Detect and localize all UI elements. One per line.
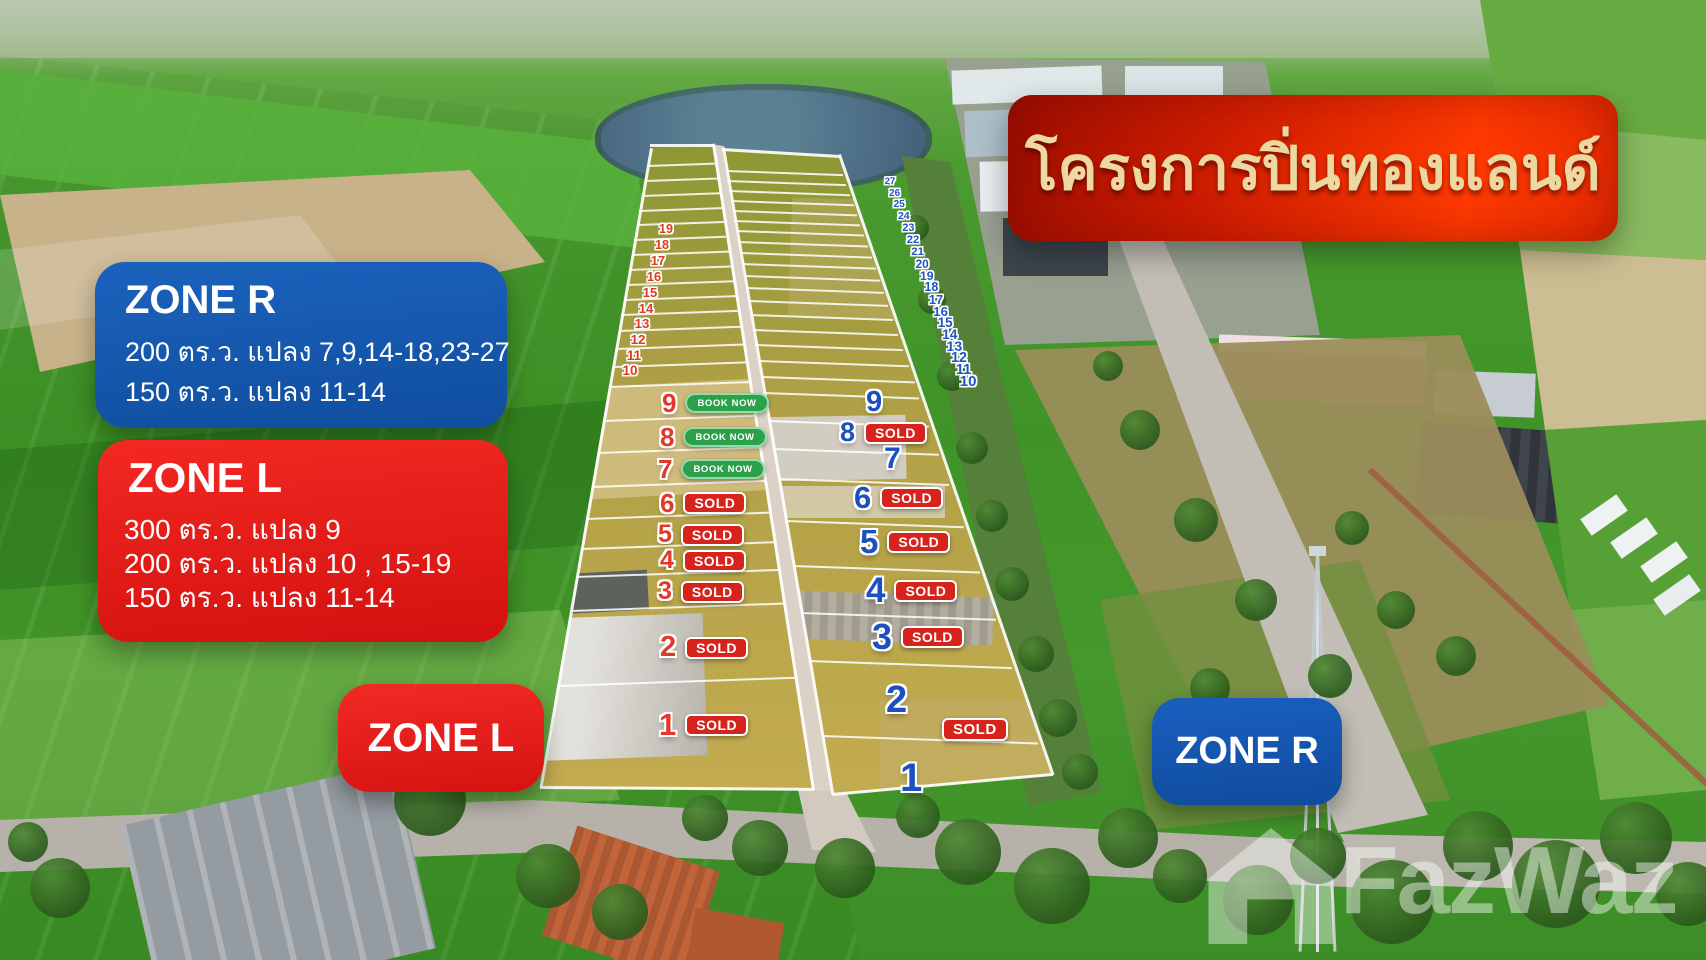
plot-number: 9: [866, 388, 882, 417]
plot-label-left-9: 9 BOOK NOW: [662, 390, 769, 416]
edge-plot-number-11: 11: [627, 348, 641, 363]
tree: [1098, 808, 1158, 868]
plot-label-left-1: 1 SOLD: [659, 709, 748, 740]
sold-badge: SOLD: [942, 718, 1008, 741]
tree: [896, 794, 940, 838]
zone-r-info-card: ZONE R 200 ตร.ว. แปลง 7,9,14-18,23-27 15…: [95, 262, 507, 428]
plot-number: 5: [658, 522, 672, 547]
plot-number: 5: [860, 525, 878, 558]
plot-label-right-7: 7: [884, 444, 901, 474]
sold-badge: SOLD: [685, 714, 748, 736]
plot-label-left-2: 2 SOLD: [660, 633, 748, 662]
plot-label-left-4: 4 SOLD: [660, 548, 746, 573]
sold-badge: SOLD: [683, 550, 746, 572]
tree: [1039, 699, 1077, 737]
zone-l-map-label: ZONE L: [338, 684, 544, 792]
plot-label-right-9: 9: [866, 388, 882, 417]
edge-plot-number-13: 13: [635, 316, 650, 331]
plot-number: 3: [872, 619, 892, 655]
tree: [1436, 636, 1476, 676]
plot-number: 9: [662, 390, 676, 416]
sold-badge: SOLD: [681, 581, 744, 603]
tree: [1014, 848, 1090, 924]
plot-label-left-7: 7 BOOK NOW: [658, 456, 765, 482]
project-title: โครงการปิ่นทองแลนด์: [1025, 121, 1601, 216]
horizon-haze: [0, 0, 1706, 58]
tree: [1335, 511, 1369, 545]
plot-number: 4: [660, 548, 674, 573]
tree: [1093, 351, 1123, 381]
plot-label-right-1: 1: [900, 758, 922, 798]
tree: [516, 844, 580, 908]
plot-number: 2: [886, 681, 907, 719]
plot-label-right-4: 4 SOLD: [866, 573, 957, 608]
plot-number: 7: [884, 444, 901, 474]
tree: [682, 795, 728, 841]
plot-label-right-6: 6 SOLD: [854, 482, 943, 513]
telecom-tower-top: [1309, 546, 1326, 556]
zone-l-card-line: 150 ตร.ว. แปลง 11-14: [124, 576, 395, 620]
project-title-banner: โครงการปิ่นทองแลนด์: [1008, 95, 1618, 241]
fazwaz-watermark: FazWaz: [1196, 822, 1676, 947]
tree: [995, 567, 1029, 601]
plot-label-left-5: 5 SOLD: [658, 522, 744, 547]
plot-number: 8: [660, 424, 674, 450]
zone-l-info-card: ZONE L 300 ตร.ว. แปลง 9 200 ตร.ว. แปลง 1…: [98, 440, 508, 642]
plot-boundary-line: [650, 144, 714, 147]
sold-badge: SOLD: [901, 626, 964, 648]
tree: [732, 820, 788, 876]
tree: [8, 822, 48, 862]
zone-r-card-title: ZONE R: [125, 278, 276, 323]
tree: [1018, 636, 1054, 672]
plot-number: 7: [658, 456, 672, 482]
plot-number: 2: [660, 633, 676, 662]
edge-plot-number-22: 22: [907, 234, 919, 246]
sold-badge: SOLD: [683, 492, 746, 514]
edge-plot-number-10: 10: [622, 363, 637, 378]
edge-plot-number-26: 26: [889, 188, 900, 199]
zone-r-map-label: ZONE R: [1152, 698, 1342, 805]
zone-l-card-title: ZONE L: [128, 454, 282, 502]
tree: [1062, 754, 1098, 790]
edge-plot-number-12: 12: [631, 332, 646, 347]
plot-number: 6: [660, 490, 674, 516]
plot-number: 1: [659, 709, 676, 740]
plot-label-left-8: 8 BOOK NOW: [660, 424, 767, 450]
plot-label-right-3: 3 SOLD: [872, 619, 964, 655]
plot-label-right-2: 2: [886, 681, 907, 719]
tree: [976, 500, 1008, 532]
plot-number: 4: [866, 573, 885, 608]
edge-plot-number-10: 10: [960, 373, 977, 390]
edge-plot-number-23: 23: [902, 222, 914, 234]
edge-plot-number-24: 24: [898, 211, 910, 222]
plot-number: 3: [658, 579, 672, 604]
watermark-text: FazWaz: [1340, 826, 1676, 936]
plot-label-right-5: 5 SOLD: [860, 525, 950, 558]
plot-number: 1: [900, 758, 922, 798]
zone-r-card-line: 200 ตร.ว. แปลง 7,9,14-18,23-27: [125, 330, 510, 373]
sold-badge: SOLD: [864, 422, 927, 444]
tree: [592, 884, 648, 940]
sold-badge: SOLD: [887, 531, 950, 553]
plot-label-left-6: 6 SOLD: [660, 490, 746, 516]
edge-plot-number-15: 15: [643, 285, 657, 300]
edge-plot-number-27: 27: [885, 176, 896, 187]
sold-badge: SOLD: [681, 524, 744, 546]
edge-plot-number-25: 25: [894, 199, 905, 210]
book-now-badge: BOOK NOW: [683, 427, 766, 447]
tree: [1174, 498, 1218, 542]
book-now-badge: BOOK NOW: [685, 393, 768, 413]
tree: [935, 819, 1001, 885]
book-now-badge: BOOK NOW: [681, 459, 764, 479]
plot-number: 8: [840, 419, 855, 446]
sold-badge: SOLD: [880, 487, 943, 509]
tree: [815, 838, 875, 898]
edge-plot-number-14: 14: [639, 301, 654, 316]
aerial-site-photo: 1918171615141312111027262524232221201918…: [0, 0, 1706, 960]
sold-badge: SOLD: [685, 637, 748, 659]
edge-plot-number-18: 18: [655, 238, 669, 252]
edge-plot-number-16: 16: [647, 269, 661, 284]
tree: [1377, 591, 1415, 629]
tree: [1308, 654, 1352, 698]
edge-plot-number-19: 19: [659, 222, 673, 236]
sold-badge: SOLD: [894, 580, 957, 602]
edge-plot-number-21: 21: [911, 246, 924, 258]
house-logo-icon: [1196, 822, 1346, 947]
zone-r-card-line: 150 ตร.ว. แปลง 11-14: [125, 370, 386, 413]
tree: [1120, 410, 1160, 450]
plot-label-left-3: 3 SOLD: [658, 579, 744, 604]
tree: [1235, 579, 1277, 621]
plot-number: 6: [854, 482, 871, 513]
tree: [956, 432, 988, 464]
edge-plot-number-17: 17: [651, 253, 665, 268]
tree: [30, 858, 90, 918]
